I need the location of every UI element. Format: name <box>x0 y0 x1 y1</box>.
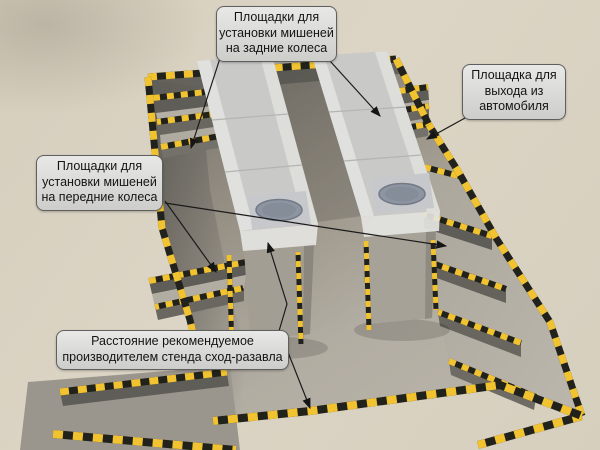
callout-recommended-distance: Расстояние рекомендуемое производителем … <box>56 330 289 370</box>
callout-rear-wheel-target-areas: Площадки для установки мишеней на задние… <box>216 6 337 62</box>
alignment-pit-diagram: Площадки для установки мишеней на задние… <box>0 0 600 450</box>
callout-front-wheel-target-areas: Площадки для установки мишеней на передн… <box>36 155 163 211</box>
callout-car-exit-platform: Площадка для выхода из автомобиля <box>462 64 566 120</box>
front-left-lower-steps <box>20 366 240 450</box>
